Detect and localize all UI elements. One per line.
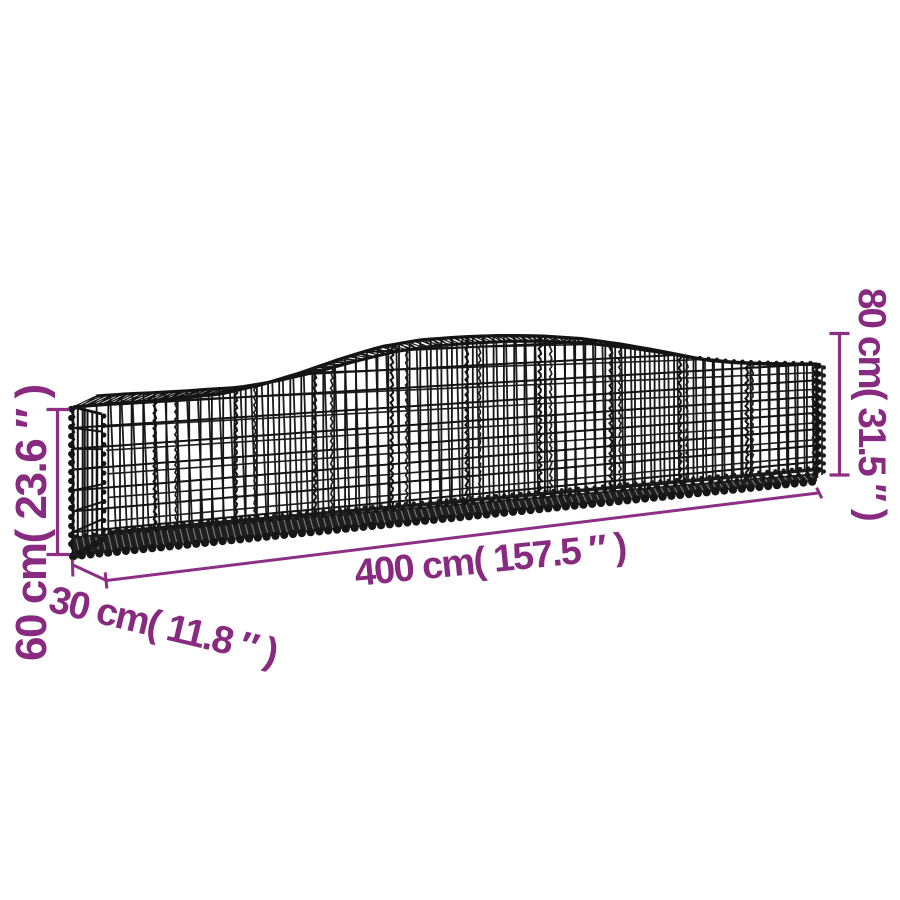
svg-text:30 cm( 11.8 ″ ): 30 cm( 11.8 ″ ) <box>45 578 281 674</box>
svg-text:80 cm( 31.5 ″ ): 80 cm( 31.5 ″ ) <box>850 288 893 520</box>
svg-text:400 cm( 157.5 ″ ): 400 cm( 157.5 ″ ) <box>353 526 628 595</box>
